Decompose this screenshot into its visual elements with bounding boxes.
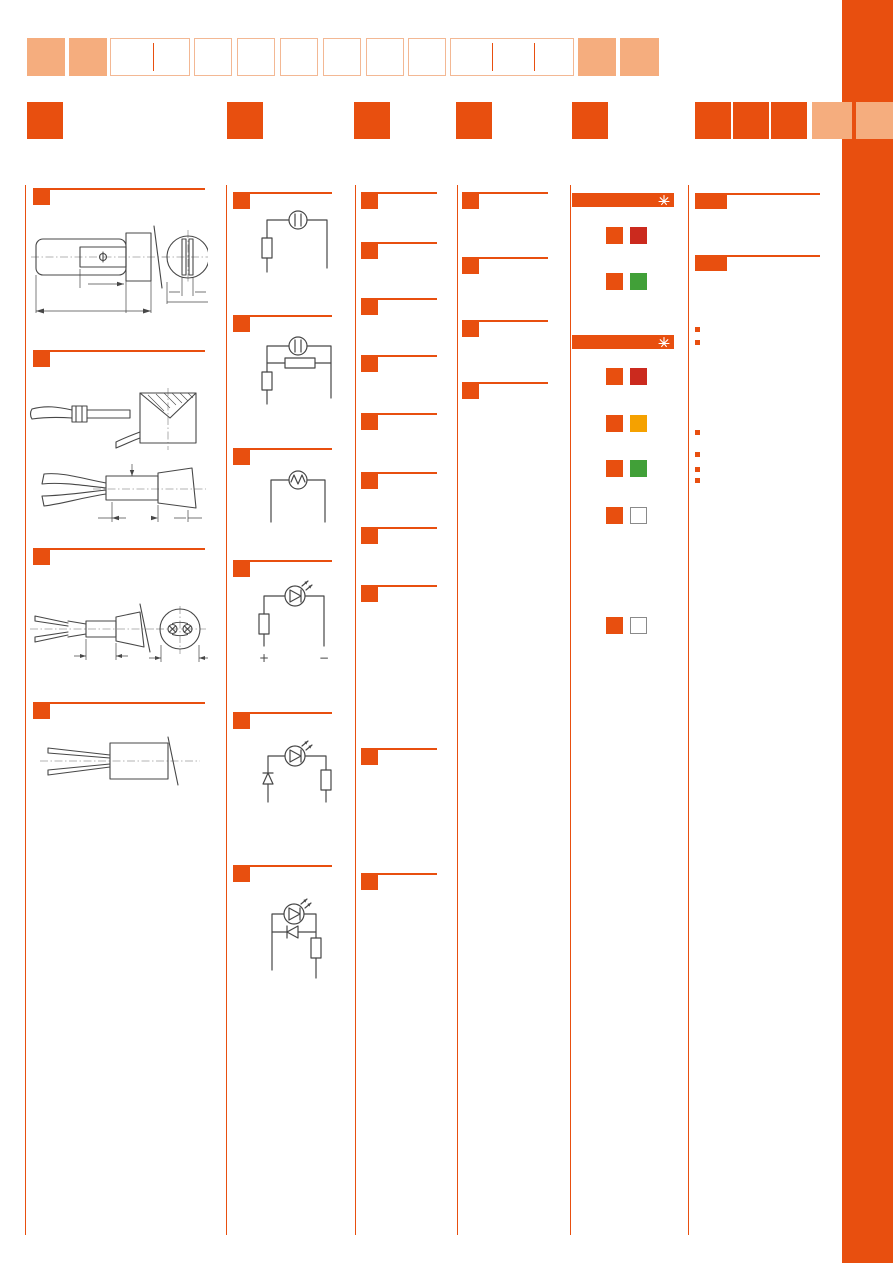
section-marker: [361, 413, 378, 430]
nav-cell-divider: [534, 43, 535, 71]
column-divider: [570, 185, 571, 1235]
technical-drawing-wedge-base-lamp: [28, 590, 208, 670]
sun-icon: [658, 194, 670, 206]
nav-row1-cell-outlined-group: [450, 38, 574, 76]
color-swatch-green: [630, 460, 647, 477]
section-marker: [361, 242, 378, 259]
section-marker: [33, 548, 50, 565]
section-marker: [33, 702, 50, 719]
section-marker: [361, 873, 378, 890]
color-swatch-white: [630, 507, 647, 524]
color-swatch-accent: [606, 617, 623, 634]
circuit-led-series-resistor: + −: [242, 580, 352, 668]
color-swatch-amber: [630, 415, 647, 432]
nav-row2-square: [354, 102, 390, 139]
list-bullet: [695, 452, 700, 457]
list-bullet: [695, 340, 700, 345]
list-bullet: [695, 327, 700, 332]
section-marker: [361, 355, 378, 372]
section-marker: [462, 382, 479, 399]
column-divider: [457, 185, 458, 1235]
nav-row2-square: [771, 102, 807, 139]
color-swatch-green: [630, 273, 647, 290]
section-rule: [33, 702, 205, 704]
polarity-minus-label: −: [319, 651, 329, 665]
column-divider: [688, 185, 689, 1235]
circuit-lamp-parallel-series-resistor: [245, 332, 345, 416]
technical-drawing-bi-pin-lamp: [38, 731, 208, 795]
color-swatch-accent: [606, 227, 623, 244]
nav-row1-cell-filled: [620, 38, 659, 76]
section-marker: [233, 865, 250, 882]
section-marker: [233, 315, 250, 332]
section-marker: [233, 560, 250, 577]
section-marker: [361, 192, 378, 209]
column-divider: [355, 185, 356, 1235]
nav-row1-cell-outlined-group: [110, 38, 190, 76]
nav-row1-cell-outlined: [408, 38, 446, 76]
nav-row2-square: [572, 102, 608, 139]
nav-row1-cell-outlined: [323, 38, 361, 76]
nav-row1-cell-outlined: [194, 38, 232, 76]
section-marker: [233, 712, 250, 729]
section-marker: [361, 472, 378, 489]
section-marker: [361, 748, 378, 765]
circuit-lamp-series-resistor: [245, 206, 345, 286]
nav-row2-square: [695, 102, 731, 139]
column-divider: [25, 185, 26, 1235]
banner-bar: [572, 193, 674, 207]
section-marker: [462, 257, 479, 274]
nav-row2-square-light: [856, 102, 893, 139]
nav-row1-cell-outlined: [280, 38, 318, 76]
nav-row2-square: [27, 102, 63, 139]
section-rule: [33, 188, 205, 190]
list-bullet: [695, 467, 700, 472]
nav-row2-square: [456, 102, 492, 139]
circuit-led-antiparallel-diode: [242, 898, 352, 990]
circuit-lamp-only: [245, 468, 345, 530]
section-marker: [462, 320, 479, 337]
header-block: [695, 193, 727, 209]
section-rule: [33, 548, 205, 550]
technical-drawing-slide-base-lamp: [28, 212, 208, 330]
nav-row1-cell-filled: [578, 38, 616, 76]
section-rule: [33, 350, 205, 352]
right-edge-band: [842, 0, 893, 1263]
section-marker: [33, 188, 50, 205]
nav-row1-cell-outlined: [366, 38, 404, 76]
nav-row1-cell-filled: [69, 38, 107, 76]
header-block: [695, 255, 727, 271]
banner-bar: [572, 335, 674, 349]
nav-row2-square: [227, 102, 263, 139]
catalog-page: + −: [0, 0, 893, 1263]
circuit-led-protection-diode: [242, 740, 352, 820]
list-bullet: [695, 478, 700, 483]
polarity-plus-label: +: [259, 651, 269, 665]
list-bullet: [695, 430, 700, 435]
color-swatch-red: [630, 227, 647, 244]
nav-row1-cell-filled: [27, 38, 65, 76]
color-swatch-accent: [606, 368, 623, 385]
column-divider: [226, 185, 227, 1235]
nav-row1-cell-outlined: [237, 38, 275, 76]
color-swatch-accent: [606, 415, 623, 432]
section-marker: [361, 527, 378, 544]
color-swatch-red: [630, 368, 647, 385]
color-swatch-accent: [606, 273, 623, 290]
section-marker: [33, 350, 50, 367]
section-marker: [233, 448, 250, 465]
nav-row2-square-light: [812, 102, 852, 139]
color-swatch-white: [630, 617, 647, 634]
color-swatch-accent: [606, 507, 623, 524]
section-marker: [361, 585, 378, 602]
nav-cell-divider: [492, 43, 493, 71]
color-swatch-accent: [606, 460, 623, 477]
technical-drawing-wired-socket: [28, 386, 213, 528]
nav-row2-square: [733, 102, 769, 139]
section-marker: [361, 298, 378, 315]
sun-icon: [658, 336, 670, 348]
nav-cell-divider: [153, 43, 154, 71]
section-marker: [462, 192, 479, 209]
